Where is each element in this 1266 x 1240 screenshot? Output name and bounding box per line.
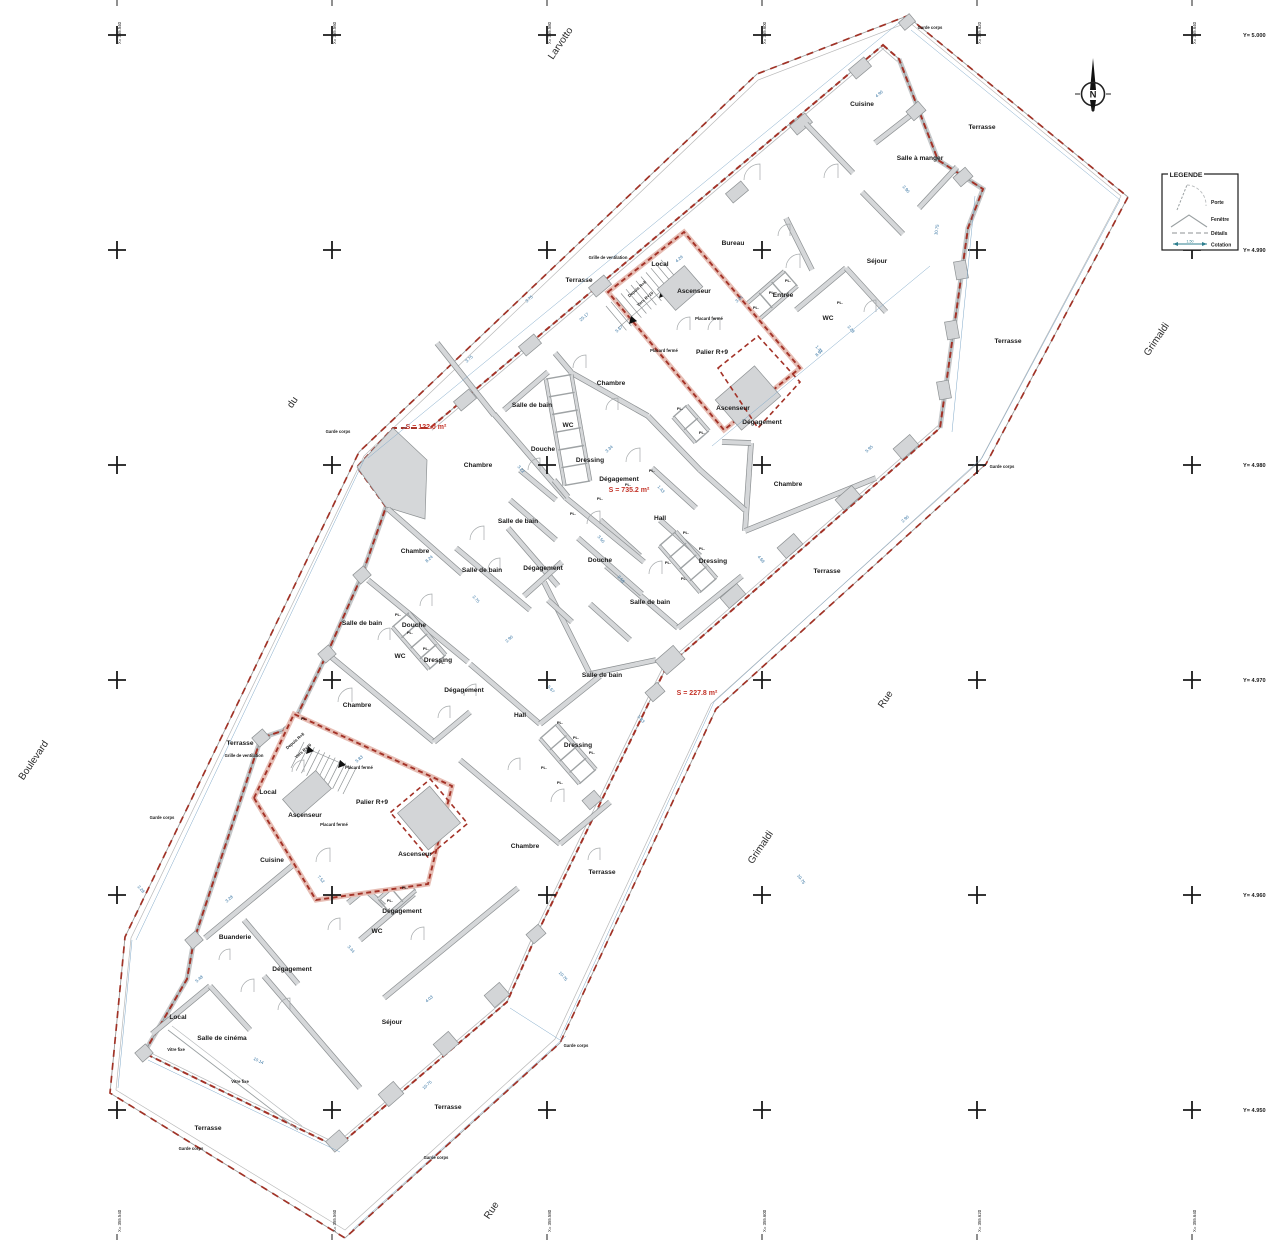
svg-text:Salle de bain: Salle de bain bbox=[498, 518, 538, 525]
svg-text:PL.: PL. bbox=[557, 780, 563, 785]
svg-text:S = 735.2 m²: S = 735.2 m² bbox=[609, 487, 650, 494]
svg-text:X= 355.540: X= 355.540 bbox=[117, 21, 122, 44]
svg-text:Dégagement: Dégagement bbox=[444, 687, 484, 694]
svg-text:Terrasse: Terrasse bbox=[588, 869, 615, 876]
svg-text:Chambre: Chambre bbox=[464, 462, 493, 469]
svg-text:Ascenseur: Ascenseur bbox=[716, 405, 750, 412]
svg-text:PL.: PL. bbox=[395, 612, 401, 617]
svg-text:PL.: PL. bbox=[681, 576, 687, 581]
svg-text:Cuisine: Cuisine bbox=[850, 101, 874, 108]
svg-text:Vitre fixe: Vitre fixe bbox=[167, 1047, 185, 1052]
svg-text:Local: Local bbox=[651, 261, 668, 268]
svg-text:Placard fermé: Placard fermé bbox=[650, 348, 678, 353]
svg-text:Cotation: Cotation bbox=[1211, 243, 1231, 249]
svg-text:Séjour: Séjour bbox=[382, 1019, 403, 1026]
svg-text:WC: WC bbox=[823, 315, 834, 322]
svg-text:PL.: PL. bbox=[649, 468, 655, 473]
svg-text:PL.: PL. bbox=[665, 560, 671, 565]
svg-text:Dressing: Dressing bbox=[576, 457, 604, 464]
svg-text:WC: WC bbox=[395, 653, 406, 660]
svg-text:Terrasse: Terrasse bbox=[813, 568, 840, 575]
svg-text:PL.: PL. bbox=[301, 716, 307, 721]
svg-text:PL.: PL. bbox=[557, 720, 563, 725]
svg-text:Palier R+9: Palier R+9 bbox=[696, 349, 728, 356]
svg-text:S = 227.8 m²: S = 227.8 m² bbox=[677, 690, 718, 697]
svg-text:Garde corps: Garde corps bbox=[326, 429, 351, 434]
svg-text:Palier R+9: Palier R+9 bbox=[356, 799, 388, 806]
svg-text:Chambre: Chambre bbox=[511, 843, 540, 850]
svg-text:Salle de bain: Salle de bain bbox=[512, 402, 552, 409]
svg-text:Cuisine: Cuisine bbox=[260, 857, 284, 864]
svg-text:Local: Local bbox=[259, 789, 276, 796]
svg-text:PL.: PL. bbox=[387, 898, 393, 903]
svg-text:PL.: PL. bbox=[439, 660, 445, 665]
svg-text:X= 355.580: X= 355.580 bbox=[547, 21, 552, 44]
svg-text:Y= 4.990: Y= 4.990 bbox=[1243, 248, 1266, 254]
svg-text:Salle de bain: Salle de bain bbox=[462, 567, 502, 574]
svg-text:Y= 4.950: Y= 4.950 bbox=[1243, 1108, 1266, 1114]
svg-text:Salle de bain: Salle de bain bbox=[630, 599, 670, 606]
svg-text:Fenêtre: Fenêtre bbox=[1211, 217, 1229, 223]
svg-text:Terrasse: Terrasse bbox=[994, 338, 1021, 345]
svg-text:Dégagement: Dégagement bbox=[599, 476, 639, 483]
svg-text:Y= 5.000: Y= 5.000 bbox=[1243, 33, 1266, 39]
svg-text:WC: WC bbox=[372, 928, 383, 935]
svg-text:Détails: Détails bbox=[1211, 231, 1228, 237]
svg-text:Dégagement: Dégagement bbox=[523, 565, 563, 572]
svg-text:Porte: Porte bbox=[1211, 200, 1224, 206]
svg-text:Terrasse: Terrasse bbox=[434, 1104, 461, 1111]
svg-text:Grille de ventilation: Grille de ventilation bbox=[589, 255, 628, 260]
svg-text:Placard fermé: Placard fermé bbox=[345, 765, 373, 770]
svg-text:Garde corps: Garde corps bbox=[918, 25, 943, 30]
svg-text:WC: WC bbox=[563, 422, 574, 429]
svg-text:Garde corps: Garde corps bbox=[564, 1043, 589, 1048]
svg-text:Séjour: Séjour bbox=[867, 258, 888, 265]
svg-text:Hall: Hall bbox=[514, 712, 526, 719]
svg-text:PL.: PL. bbox=[402, 885, 408, 890]
svg-text:Placard fermé: Placard fermé bbox=[695, 316, 723, 321]
svg-text:Salle à manger: Salle à manger bbox=[897, 155, 944, 162]
svg-text:Vitre fixe: Vitre fixe bbox=[231, 1079, 249, 1084]
svg-text:Y= 4.960: Y= 4.960 bbox=[1243, 893, 1266, 899]
svg-text:Buanderie: Buanderie bbox=[219, 934, 252, 941]
svg-text:Entrée: Entrée bbox=[773, 292, 794, 299]
svg-text:PL.: PL. bbox=[677, 406, 683, 411]
svg-text:X= 355.600: X= 355.600 bbox=[762, 1209, 767, 1232]
svg-text:Garde corps: Garde corps bbox=[179, 1146, 204, 1151]
svg-text:Chambre: Chambre bbox=[774, 481, 803, 488]
svg-text:PL.: PL. bbox=[683, 530, 689, 535]
svg-text:X= 355.580: X= 355.580 bbox=[547, 1209, 552, 1232]
svg-text:PL.: PL. bbox=[753, 305, 759, 310]
svg-text:Douche: Douche bbox=[588, 557, 613, 564]
svg-text:S = 122.0 m²: S = 122.0 m² bbox=[406, 424, 447, 431]
svg-text:Chambre: Chambre bbox=[401, 548, 430, 555]
svg-text:Ascenseur: Ascenseur bbox=[398, 851, 432, 858]
svg-text:PL.: PL. bbox=[699, 430, 705, 435]
svg-text:PL.: PL. bbox=[699, 546, 705, 551]
svg-text:Terrasse: Terrasse bbox=[968, 124, 995, 131]
svg-text:Dressing: Dressing bbox=[699, 558, 727, 565]
svg-text:Ascenseur: Ascenseur bbox=[288, 812, 322, 819]
svg-text:Dégagement: Dégagement bbox=[382, 908, 422, 915]
svg-text:Dégagement: Dégagement bbox=[272, 966, 312, 973]
svg-text:Garde corps: Garde corps bbox=[150, 815, 175, 820]
svg-text:1.50: 1.50 bbox=[1187, 240, 1194, 244]
svg-text:Chambre: Chambre bbox=[597, 380, 626, 387]
svg-text:Terrasse: Terrasse bbox=[565, 277, 592, 284]
svg-text:N: N bbox=[1090, 90, 1097, 101]
svg-text:Douche: Douche bbox=[402, 622, 427, 629]
svg-text:Garde corps: Garde corps bbox=[424, 1155, 449, 1160]
svg-text:Douche: Douche bbox=[531, 446, 556, 453]
svg-text:PL.: PL. bbox=[407, 630, 413, 635]
svg-text:PL.: PL. bbox=[837, 300, 843, 305]
svg-text:X= 355.540: X= 355.540 bbox=[117, 1209, 122, 1232]
svg-text:PL.: PL. bbox=[625, 482, 631, 487]
svg-text:PL.: PL. bbox=[785, 278, 791, 283]
svg-text:Chambre: Chambre bbox=[343, 702, 372, 709]
svg-text:Grille de ventilation: Grille de ventilation bbox=[225, 753, 264, 758]
svg-text:X= 355.560: X= 355.560 bbox=[332, 1209, 337, 1232]
svg-text:Garde corps: Garde corps bbox=[990, 464, 1015, 469]
svg-text:X= 355.620: X= 355.620 bbox=[977, 21, 982, 44]
svg-text:Dressing: Dressing bbox=[564, 742, 592, 749]
svg-text:X= 355.620: X= 355.620 bbox=[977, 1209, 982, 1232]
svg-text:X= 355.640: X= 355.640 bbox=[1192, 1209, 1197, 1232]
svg-text:PL.: PL. bbox=[541, 765, 547, 770]
svg-text:PL.: PL. bbox=[570, 511, 576, 516]
svg-text:Salle de cinéma: Salle de cinéma bbox=[197, 1035, 247, 1042]
svg-text:PL.: PL. bbox=[423, 646, 429, 651]
svg-text:Y= 4.980: Y= 4.980 bbox=[1243, 463, 1266, 469]
svg-text:PL.: PL. bbox=[597, 496, 603, 501]
svg-text:Terrasse: Terrasse bbox=[194, 1125, 221, 1132]
svg-text:Hall: Hall bbox=[654, 515, 666, 522]
svg-text:PL.: PL. bbox=[769, 290, 775, 295]
svg-text:PL.: PL. bbox=[589, 750, 595, 755]
svg-text:Salle de bain: Salle de bain bbox=[582, 672, 622, 679]
svg-text:PL.: PL. bbox=[573, 735, 579, 740]
svg-text:LEGENDE: LEGENDE bbox=[1170, 172, 1203, 179]
svg-text:Ascenseur: Ascenseur bbox=[677, 288, 711, 295]
svg-text:Bureau: Bureau bbox=[722, 240, 745, 247]
svg-text:X= 355.640: X= 355.640 bbox=[1192, 21, 1197, 44]
svg-text:X= 355.560: X= 355.560 bbox=[332, 21, 337, 44]
svg-text:Local: Local bbox=[169, 1014, 186, 1021]
svg-text:Y= 4.970: Y= 4.970 bbox=[1243, 678, 1266, 684]
svg-text:Placard fermé: Placard fermé bbox=[320, 822, 348, 827]
svg-text:Salle de bain: Salle de bain bbox=[342, 620, 382, 627]
svg-text:Dégagement: Dégagement bbox=[742, 419, 782, 426]
svg-text:X= 355.600: X= 355.600 bbox=[762, 21, 767, 44]
